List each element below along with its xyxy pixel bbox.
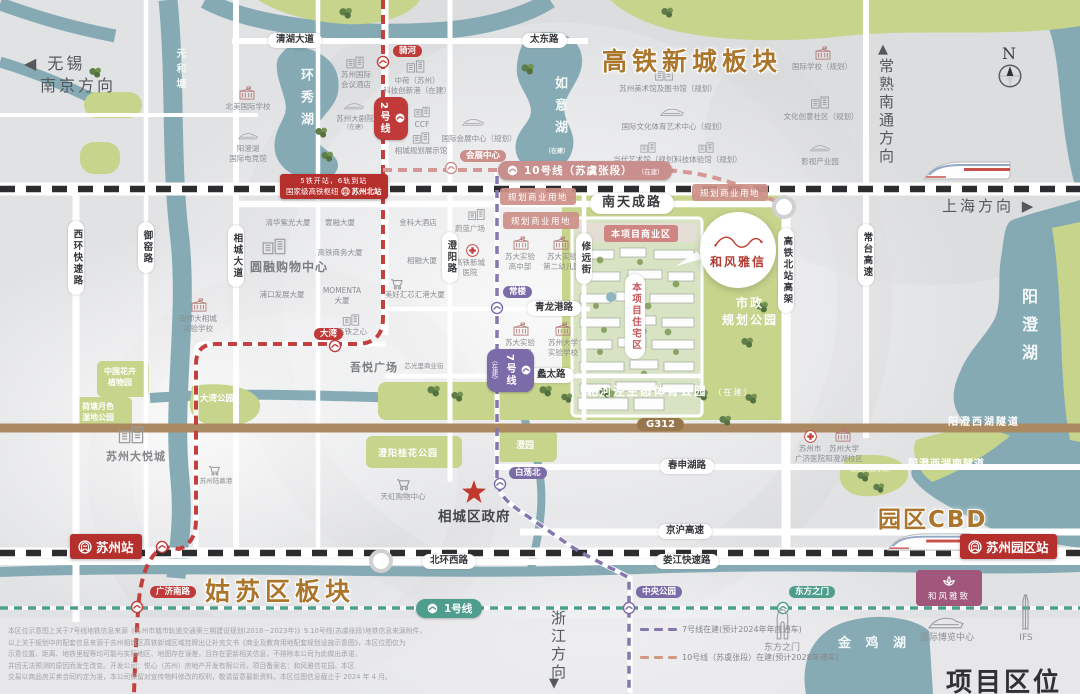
building-icon — [810, 142, 830, 154]
building-icon — [238, 130, 258, 142]
project-name: 和风雅信 — [710, 253, 766, 270]
lm-yuanrong: 圆融购物中心 — [250, 258, 328, 275]
railway-logo-icon — [968, 540, 982, 554]
cart-icon — [390, 278, 404, 290]
map: 高铁新城板块 姑苏区板块 园区CBD 项目区位图 ◀ 无锡 南京方向 ▲ 常熟南… — [0, 0, 1080, 694]
area-title-gusu: 姑苏区板块 — [205, 572, 355, 608]
project-res-zone: 本项目住宅区 — [625, 274, 645, 359]
station-guangjinan: 广济南路 — [150, 586, 196, 598]
planned-commercial-2: 规划商业用地 — [503, 212, 579, 229]
school-icon — [190, 298, 208, 312]
building-icon — [342, 314, 360, 326]
road-label-loujiang: 娄江快速路 — [655, 554, 719, 569]
direction-wuxi-line1: ◀ 无锡 — [24, 50, 85, 74]
station-baidangbei: 白荡北 — [509, 467, 547, 479]
lm-intl-school-n: 北美国际学校 — [214, 102, 282, 112]
ifs-tower-icon — [1020, 594, 1031, 630]
road-label-beihuanxi: 北环西路 — [422, 554, 476, 569]
station-dongfang: 东方之门 — [789, 586, 835, 598]
lm-expo-center: 国际博览中心 — [916, 632, 978, 644]
lm-esports: 阳澄湖国际电竞馆 — [216, 144, 280, 164]
road-label-gaojia: 高铁北站高架 — [778, 228, 794, 313]
lake-label-ruyi-note: （在建） — [545, 146, 569, 155]
lm-xiangrong: 相融大厦 — [400, 256, 444, 266]
lm-ccf: CCF — [404, 120, 440, 130]
planned-commercial-1: 规划商业用地 — [500, 188, 576, 205]
lm-planning-hall: 相城规划展示馆 — [390, 146, 452, 156]
area-title-yuanqu-cbd: 园区CBD — [878, 500, 988, 534]
lm-sd-yc: 苏州大学阳澄湖校区 — [818, 444, 870, 464]
building-icon — [414, 106, 430, 118]
station-dawan: 大湾 — [314, 328, 343, 340]
lm-creative-community: 文化创意社区（规划） — [778, 112, 864, 122]
road-label-xiuyuan: 修远街 — [576, 233, 592, 284]
lm-art-library: 苏州美术馆及图书馆（规划） — [612, 84, 724, 94]
lm-intl-school-e: 国际学校（规划） — [786, 62, 858, 72]
brand-badge: 和风雅致 — [916, 570, 982, 606]
road-label-chunshenhu: 春申湖路 — [660, 459, 714, 474]
station-zhongyang: 中央公园 — [636, 586, 682, 598]
lm-expo-planned: 国际会展中心（规划） — [436, 134, 522, 144]
badge-name: 和风雅致 — [928, 590, 970, 602]
road-label-changtai: 常台高速 — [858, 224, 874, 286]
railway-logo-icon — [78, 540, 92, 554]
legend-line10: 10号线（苏虞张段）在建(预计2028年通车) — [640, 652, 839, 663]
lotus-icon — [940, 575, 958, 589]
road-label-tunnel-w: 阳澄西湖隧道 — [948, 413, 1020, 428]
building-icon — [346, 56, 364, 69]
lm-sd-high: 苏大实验高中部 — [498, 252, 542, 272]
lm-gtsw: 高铁商务大厦 — [314, 248, 366, 258]
metro-banner-line7: 7号线（在建） — [487, 349, 534, 392]
metro-icon — [426, 602, 439, 615]
lake-label-ruyi: 如意湖 — [550, 76, 569, 142]
planned-commercial-3: 规划商业用地 — [692, 184, 768, 201]
school-icon — [814, 46, 832, 60]
building-icon — [698, 142, 714, 153]
station-changlou: 常楼 — [503, 286, 532, 298]
station-huizhan: 会展中心 — [460, 150, 506, 162]
lm-culture-center: 国际文化体育艺术中心（规划） — [612, 122, 736, 132]
direction-changshu: 常熟南通方向 — [876, 58, 897, 166]
sports-park-label: 北河泾生态体育公园 （在建） — [586, 383, 754, 399]
lm-huanrong: 寰融大厦 — [318, 218, 362, 228]
school-icon — [554, 322, 572, 336]
lm-xc-gov: 相城区政府 — [438, 505, 511, 525]
hospital-cross-icon — [804, 430, 817, 443]
road-label-litai: 蠡太路 — [529, 368, 574, 383]
road-label-taidong: 太东路 — [522, 33, 567, 48]
metro-banner-line1: 1号线 — [416, 599, 482, 618]
direction-zhejiang: 浙江方向 — [548, 610, 569, 682]
legend-line7: 7号线在建(预计2024年年底通车) — [640, 624, 802, 635]
metro-banner-line10: 10号线（苏虞张段）（在建） — [498, 161, 672, 180]
lm-momenta: MOMENTA大厦 — [318, 286, 366, 306]
building-icon — [344, 100, 364, 112]
lm-jinke: 金科大酒店 — [392, 218, 444, 228]
project-logo: 和风雅信 — [700, 212, 776, 288]
direction-wuxi-line2: 南京方向 — [40, 72, 116, 96]
water-label-yuanhetang: 元和塘 — [172, 48, 187, 93]
building-icon — [640, 142, 656, 153]
lm-ziguang: 清华紫光大厦 — [256, 218, 320, 228]
lake-label-huanxiu: 环秀湖 — [296, 68, 315, 134]
metro-icon — [394, 112, 406, 124]
metro-banner-line2: 2号线 — [374, 97, 408, 140]
direction-changshu-arrow: ▲ — [878, 42, 891, 57]
road-label-yuyao: 御窑路 — [138, 222, 154, 273]
rail-station-beizhan: 5铁开站，6轨到站 国家级高铁枢纽 苏州北站 — [280, 174, 388, 199]
rail-station-yuanqu: 苏州园区站 — [960, 534, 1057, 559]
park-dawan: 大湾公园 — [200, 392, 234, 404]
building-icon — [406, 60, 425, 73]
expo-center-icon — [928, 616, 964, 629]
park-chengyuan: 澄园 — [516, 438, 534, 451]
lm-xinguangli: 芯光里商业街 — [398, 362, 450, 371]
railway-logo-icon — [341, 187, 350, 196]
park-golf: 太阳岛高尔夫 — [850, 463, 889, 473]
building-icon — [412, 132, 430, 144]
road-label-tunnel-s: 阳澄西湖南隧道 — [908, 455, 985, 470]
road-label-g312: G312 — [637, 418, 684, 431]
lm-film-park: 影视产业园 — [792, 157, 848, 167]
road-label-chengyang: 澄阳路 — [442, 232, 458, 283]
page-title: 项目区位图 — [946, 662, 1080, 694]
lm-nsd: 南师大相城实验学校 — [170, 314, 226, 334]
lm-zhonghe: 中荷（苏州）科技创新港（在建） — [374, 76, 460, 96]
building-icon — [468, 208, 485, 221]
lm-tech-hall: 科技体验馆（规划） — [672, 155, 744, 165]
lake-label-yangcheng: 阳澄湖 — [1016, 288, 1040, 372]
lm-sd-school: 苏州大学实验学校 — [540, 338, 586, 358]
compass-n-label: N — [1002, 44, 1016, 63]
road-label-xihuan: 西环快速路 — [68, 221, 84, 295]
project-biz-zone: 本项目商业区 — [604, 225, 678, 242]
lm-lumugang: 苏州陆慕港 — [190, 477, 242, 486]
lm-pukou: 浦口发展大厦 — [252, 290, 312, 300]
road-label-qinglonggang: 青龙港路 — [527, 301, 581, 316]
disclaimer-text: 本区位示意图上关于7号线地铁信息来源《苏州市城市轨道交通第三期建设规划(2018… — [8, 626, 486, 684]
building-icon — [118, 426, 144, 444]
project-logo-ribbon-icon — [712, 231, 764, 251]
civic-park-label: 市政规划公园 — [722, 294, 778, 328]
park-guihua: 澄阳桂花公园 — [378, 446, 438, 459]
school-icon — [834, 428, 852, 442]
beizhan-slogan: 5铁开站，6轨到站 — [286, 176, 382, 186]
lm-ifs: IFS — [1008, 632, 1044, 644]
beizhan-line2: 国家级高铁枢纽 苏州北站 — [286, 186, 382, 197]
hospital-cross-icon — [466, 244, 479, 257]
station-qihe: 骑河 — [393, 45, 422, 57]
school-icon — [238, 86, 256, 100]
building-icon — [810, 96, 830, 109]
mall-icon — [262, 238, 286, 255]
metro-icon — [506, 164, 519, 177]
lm-xinhui: 芯汇港大厦 — [398, 290, 454, 300]
building-icon — [462, 116, 484, 128]
lm-wuyue: 吾悦广场 — [350, 359, 398, 375]
cart-icon — [396, 478, 411, 491]
school-icon — [552, 236, 570, 250]
park-flower: 中国花卉植物园 — [104, 366, 136, 388]
lm-tianhong: 天虹购物中心 — [372, 492, 434, 502]
lm-joy-city: 苏州大悦城 — [106, 448, 166, 464]
cart-icon — [208, 465, 221, 476]
area-title-gaotie: 高铁新城板块 — [602, 42, 782, 78]
school-icon — [512, 322, 530, 336]
road-label-nantiancheng: 南天成路 — [590, 193, 674, 214]
road-label-jinghu: 京沪高速 — [658, 524, 712, 539]
road-label-xiangchengdadao: 相城大道 — [228, 225, 244, 287]
metro-icon — [520, 364, 532, 376]
park-lotus: 荷塘月色湿地公园 — [82, 401, 114, 423]
road-label-qinghu: 清湖大道 — [268, 33, 322, 48]
lake-label-jinji: 金 鸡 湖 — [838, 632, 911, 651]
building-icon — [660, 106, 684, 118]
school-icon — [512, 236, 530, 250]
rail-station-suzhou: 苏州站 — [70, 534, 142, 559]
direction-zhejiang-arrow: ▼ — [549, 676, 562, 691]
compass-icon — [996, 62, 1024, 90]
direction-shanghai: 上海方向 ▶ — [942, 195, 1036, 216]
